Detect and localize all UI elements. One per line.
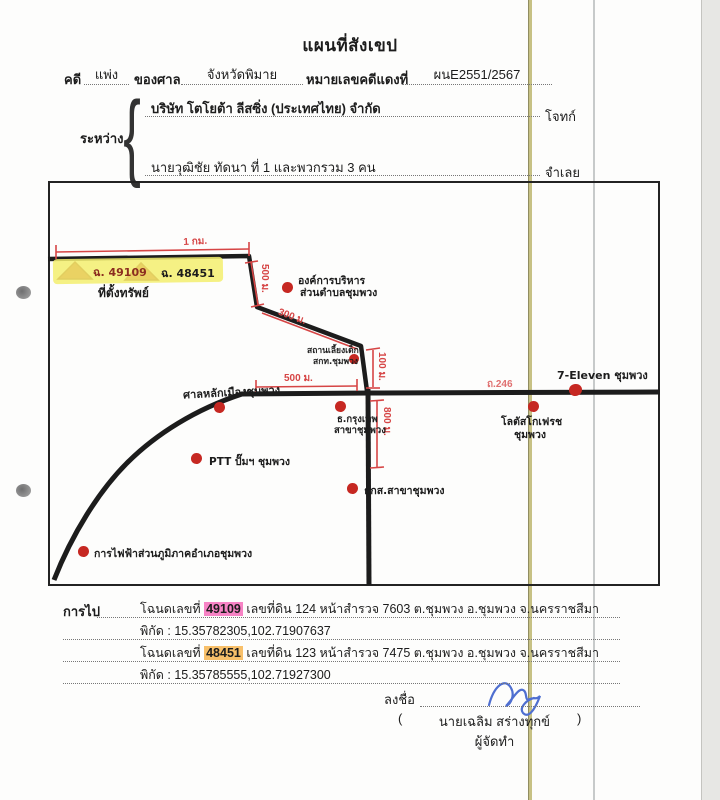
distance-500m-main-label: 500 ม. <box>284 371 313 386</box>
coordinates-2: พิกัด : 15.35785555,102.71927300 <box>63 668 331 682</box>
directions-label: การไป <box>63 601 100 622</box>
lotus-label-2: ชุมพวง <box>514 426 546 443</box>
deed1-prefix: โฉนดเลขที่ <box>140 602 201 616</box>
plaintiff-role: โจทก์ <box>545 106 576 127</box>
coordinates-1: พิกัด : 15.35782305,102.71907637 <box>63 624 331 638</box>
court-label: ของศาล <box>134 69 181 90</box>
plaintiff-name: บริษัท โตโยต้า ลีสซิ่ง (ประเทศไทย) จำกัด <box>145 101 381 116</box>
page-title: แผนที่สังเขป <box>0 32 700 59</box>
plaintiff-field: บริษัท โตโยต้า ลีสซิ่ง (ประเทศไทย) จำกัด <box>145 98 540 117</box>
hole-punch-bottom <box>16 484 31 497</box>
sao-label-2: ส่วนตำบลชุมพวง <box>300 284 377 301</box>
hole-punch-top <box>16 286 31 299</box>
between-brace: { <box>123 94 141 178</box>
distance-1km-label: 1 กม. <box>183 234 208 250</box>
seven-eleven-label: 7-Eleven ชุมพวง <box>557 366 648 384</box>
defendant-field: นายวุฒิชัย ทัดนา ที่ 1 และพวกรวม 3 คน <box>145 157 540 176</box>
deed2-number: 48451 <box>204 646 243 660</box>
pea-label: การไฟฟ้าส่วนภูมิภาคอำเภอชุมพวง <box>94 545 252 562</box>
road-number-label: ถ.246 <box>487 377 513 392</box>
defendant-name: นายวุฒิชัย ทัดนา ที่ 1 และพวกรวม 3 คน <box>145 160 376 175</box>
preparer-name: นายเฉลิม สร่างทุกข์ <box>412 711 577 732</box>
sign-label: ลงชื่อ <box>384 689 415 710</box>
distance-500m-top-label: 500 ม. <box>257 264 272 293</box>
marker-label-49109: ฉ. 49109 <box>93 263 147 281</box>
preparer-role: ผู้จัดทำ <box>412 731 577 752</box>
case-number-field: ผนE2551/2567 <box>402 66 552 85</box>
deed1-details: เลขที่ดิน 124 หน้าสำรวจ 7603 ต.ชุมพวง อ.… <box>246 602 599 616</box>
page-edge <box>701 0 720 800</box>
court-name-field: จังหวัดพิมาย <box>181 66 303 85</box>
deed2-details: เลขที่ดิน 123 หน้าสำรวจ 7475 ต.ชุมพวง อ.… <box>246 646 599 660</box>
between-label: ระหว่าง <box>80 128 123 149</box>
marker-label-48451: ฉ. 48451 <box>161 264 215 282</box>
case-label: คดี <box>64 69 81 90</box>
paren-open: ( <box>398 711 402 726</box>
paren-close: ) <box>577 711 581 726</box>
case-number-label: หมายเลขคดีแดงที่ <box>306 69 408 90</box>
property-caption: ที่ตั้งทรัพย์ <box>98 284 149 303</box>
directions-line-3: โฉนดเลขที่ 48451 เลขที่ดิน 123 หน้าสำรวจ… <box>63 643 620 662</box>
distance-100m-label: 100 ม. <box>374 352 389 381</box>
scanned-document-page: แผนที่สังเขป คดี แพ่ง ของศาล จังหวัดพิมา… <box>0 0 720 800</box>
defendant-role: จำเลย <box>545 162 580 183</box>
signature-line <box>420 689 640 707</box>
deed1-number: 49109 <box>204 602 243 616</box>
bangkok-bank-label-2: สาขาชุมพวง <box>334 423 386 438</box>
ptt-label: PTT ปั๊มฯ ชุมพวง <box>209 453 290 470</box>
deed2-prefix: โฉนดเลขที่ <box>140 646 201 660</box>
directions-line-2: พิกัด : 15.35782305,102.71907637 <box>63 621 620 640</box>
directions-line-4: พิกัด : 15.35785555,102.71927300 <box>63 665 620 684</box>
baac-label: ธกส.สาขาชุมพวง <box>364 482 445 499</box>
daycare-label-2: สกท.ชุมพวง <box>313 354 358 368</box>
directions-line-1: โฉนดเลขที่ 49109 เลขที่ดิน 124 หน้าสำรวจ… <box>97 599 620 618</box>
